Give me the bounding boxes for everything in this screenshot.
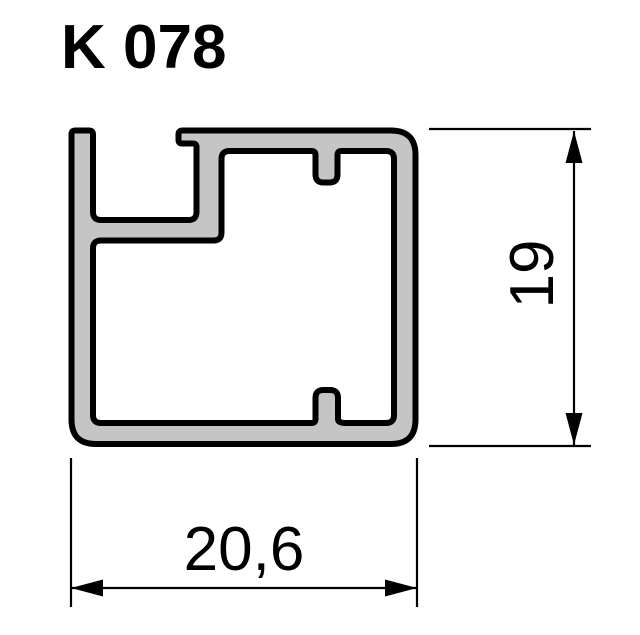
arrow-down-icon xyxy=(566,413,583,445)
profile-shape xyxy=(72,131,416,445)
height-dimension: 19 xyxy=(429,129,591,446)
width-dimension-label: 20,6 xyxy=(184,515,305,584)
arrow-up-icon xyxy=(566,131,583,163)
arrow-right-icon xyxy=(385,580,417,597)
page-title: K 078 xyxy=(61,13,226,82)
width-dimension: 20,6 xyxy=(71,458,417,607)
arrow-left-icon xyxy=(71,580,103,597)
drawing-page: K 078 19 20,6 xyxy=(0,0,640,635)
technical-drawing-canvas: K 078 19 20,6 xyxy=(0,0,640,635)
height-dimension-label: 19 xyxy=(498,240,567,309)
